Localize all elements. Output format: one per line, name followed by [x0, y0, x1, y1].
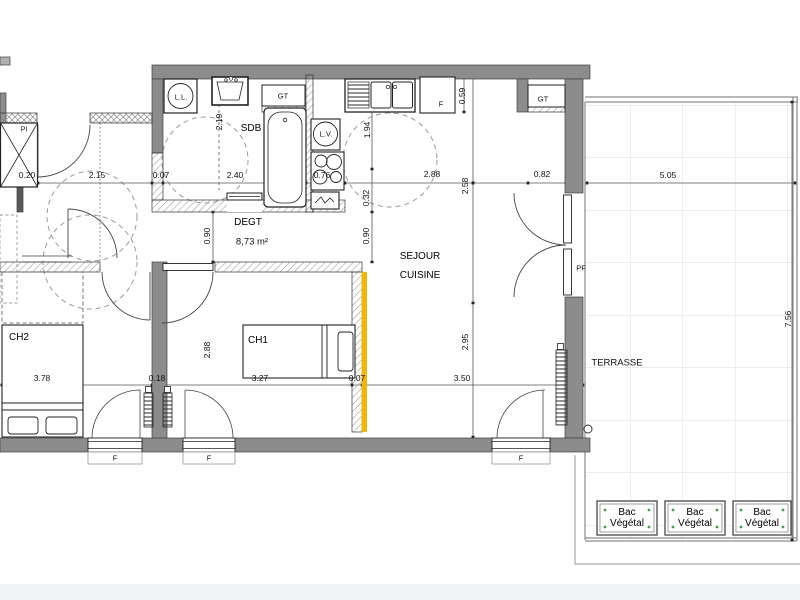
dim-3-27: 3.27	[252, 374, 269, 383]
dim-0-07-bottom: 0.07	[349, 374, 366, 383]
washing-machine-label: L.L.	[175, 93, 188, 101]
dim-2-19: 2.19	[215, 114, 224, 131]
dim-0-82: 0.82	[534, 170, 551, 179]
french-window-label: PF	[576, 264, 586, 272]
duct-bath-label: GT	[278, 92, 288, 100]
room-label-ch2: CH2	[9, 333, 29, 343]
dim-terrace-depth: 7.56	[784, 311, 793, 328]
radiator-ch1	[163, 387, 172, 428]
dim-3-50: 3.50	[454, 374, 471, 383]
floor-plan: SDB DEGT 8,73 m² SEJOUR CUISINE CH1 CH2 …	[0, 0, 800, 600]
turning-circle-sdb	[162, 117, 248, 203]
dim-0-18: 0.18	[149, 374, 166, 383]
dim-3-78: 3.78	[34, 374, 51, 383]
radiator-ch2	[144, 387, 153, 428]
room-label-terrasse: TERRASSE	[591, 358, 642, 368]
drain-outlet	[584, 425, 592, 433]
entry-door	[38, 125, 90, 177]
dim-0-90-right: 0.90	[362, 228, 371, 245]
dim-2-58: 2.58	[461, 178, 470, 195]
page-bottom-margin	[0, 584, 800, 600]
radiator-sejour	[556, 344, 567, 426]
terrace	[575, 97, 800, 564]
dim-0-76: 0.76	[314, 171, 331, 180]
dim-terrace-width: 5.05	[660, 171, 677, 180]
kitchen-duct-wall-stub	[517, 79, 528, 112]
window-f1-label: F	[113, 454, 118, 462]
ch2-lintel	[22, 256, 72, 262]
dim-2-40: 2.40	[227, 171, 244, 180]
right-wall-upper	[565, 79, 583, 193]
dim-0-32: 0.32	[362, 190, 371, 207]
dim-0-59: 0.59	[458, 88, 467, 105]
duct-kitchen-label: GT	[538, 95, 548, 103]
hall-furniture-outline	[0, 215, 17, 303]
room-label-cuisine: CUISINE	[400, 271, 441, 281]
dim-0-90-left: 0.90	[203, 228, 212, 245]
bed-ch1	[243, 325, 355, 378]
planter-label-1: Bac Végétal	[610, 507, 644, 529]
hall-door	[68, 209, 117, 258]
room-label-degt: DEGT	[234, 218, 262, 228]
dim-0-07-top: 0.07	[153, 171, 170, 180]
room-label-sdb: SDB	[241, 124, 262, 134]
right-wall-lower	[565, 297, 583, 438]
ch1-door	[162, 264, 213, 324]
window-f3-label: F	[519, 454, 524, 462]
dim-2-88-ch1: 2.88	[203, 342, 212, 359]
dim-1-94: 1.94	[363, 122, 372, 139]
planter-label-2: Bac Végétal	[678, 507, 712, 529]
closet-pi-label: PI	[21, 127, 28, 134]
highlighted-wall	[362, 272, 368, 432]
dim-2-15: 2.15	[89, 171, 106, 180]
dim-2-95: 2.95	[461, 334, 470, 351]
room-label-sejour: SEJOUR	[400, 252, 441, 262]
sdb-sliding-door	[227, 193, 262, 212]
kitchen-sink	[345, 79, 415, 112]
dishwasher-label: L.V.	[320, 130, 333, 138]
turning-circle-kitchen	[343, 113, 437, 207]
ch2-door	[102, 272, 150, 320]
dim-2-88-top: 2.88	[424, 170, 441, 179]
fridge-label: F	[439, 100, 444, 108]
bedroom-furniture	[0, 215, 355, 437]
room-label-ch1: CH1	[248, 336, 268, 346]
washbasin	[212, 77, 248, 105]
room-area-degt: 8,73 m²	[236, 237, 268, 247]
wardrobe-ch2	[2, 272, 83, 323]
turning-circle-hall-1	[47, 171, 137, 261]
sdb-left-wall-upper	[152, 79, 163, 153]
french-door-pf	[514, 193, 572, 297]
kitchen-fixtures	[311, 77, 455, 209]
bathtub	[264, 108, 306, 207]
cut-wall-top-left	[0, 57, 10, 65]
fridge	[420, 77, 455, 113]
window-f2-label: F	[207, 454, 212, 462]
utility-box	[311, 192, 339, 209]
dim-0-20: 0.20	[19, 171, 36, 180]
planter-label-3: Bac Végétal	[745, 507, 779, 529]
